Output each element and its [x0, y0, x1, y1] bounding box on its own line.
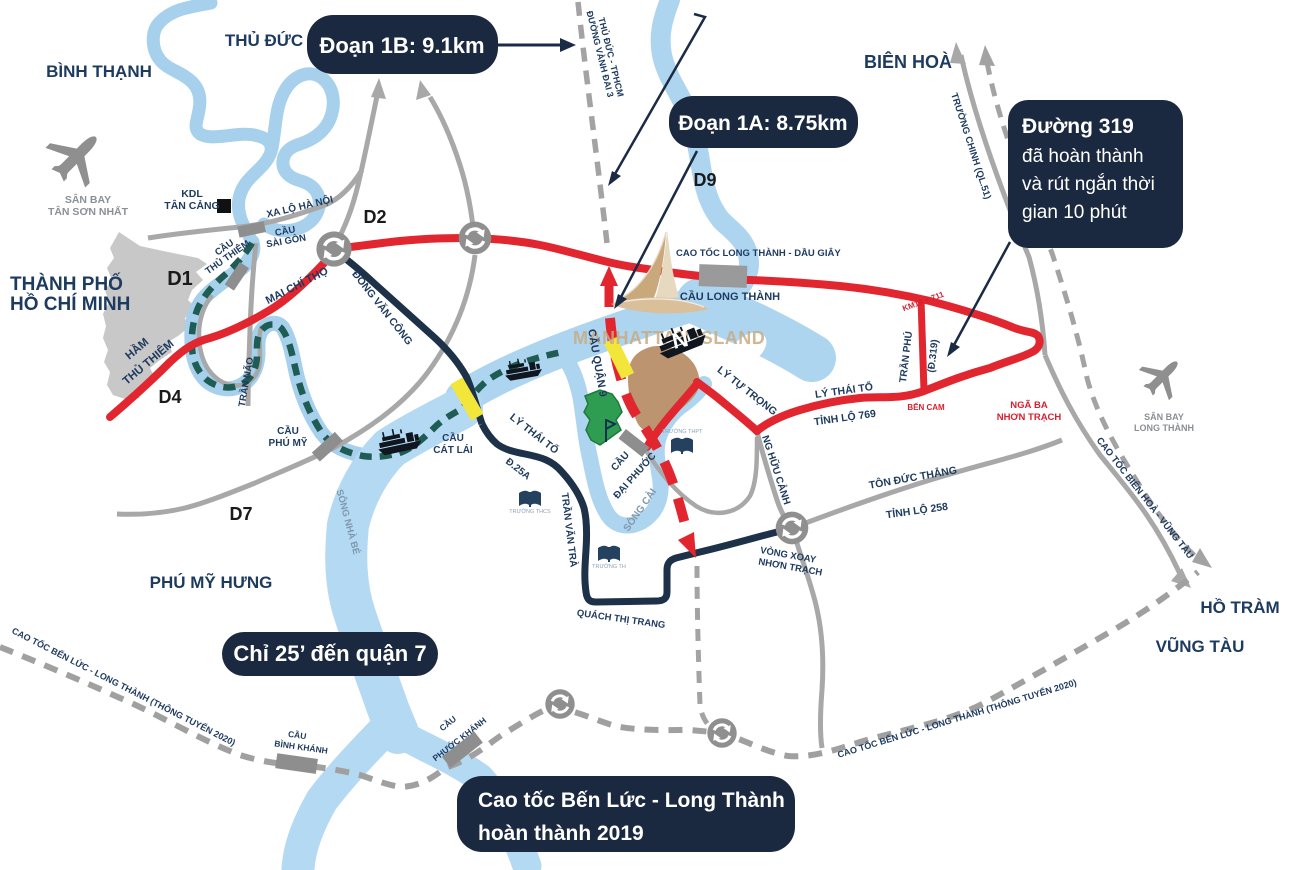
svg-text:BÌNH THẠNH: BÌNH THẠNH [46, 62, 152, 81]
svg-text:đã hoàn thành: đã hoàn thành [1022, 146, 1144, 167]
svg-text:TÂN SƠN NHẤT: TÂN SƠN NHẤT [48, 205, 129, 218]
svg-text:CÁT LÁI: CÁT LÁI [433, 443, 473, 456]
svg-text:Đoạn 1A: 8.75km: Đoạn 1A: 8.75km [678, 112, 847, 135]
svg-text:SÂN BAY: SÂN BAY [65, 193, 111, 206]
svg-text:CAO TỐC LONG THÀNH - DẦU GIÂY: CAO TỐC LONG THÀNH - DẦU GIÂY [676, 247, 841, 259]
svg-text:NGÃ BA: NGÃ BA [1010, 400, 1048, 411]
svg-text:Cao tốc Bến Lức - Long Thành: Cao tốc Bến Lức - Long Thành [478, 789, 785, 812]
svg-text:gian 10 phút: gian 10 phút [1022, 202, 1127, 223]
svg-text:D4: D4 [158, 387, 181, 407]
svg-text:D2: D2 [363, 207, 386, 227]
svg-text:HỒ CHÍ MINH: HỒ CHÍ MINH [10, 293, 130, 315]
svg-text:THÀNH PHỐ: THÀNH PHỐ [10, 273, 123, 295]
svg-text:BẾN CAM: BẾN CAM [907, 402, 945, 412]
svg-text:hoàn thành 2019: hoàn thành 2019 [478, 822, 644, 845]
svg-text:D1: D1 [167, 268, 193, 290]
svg-text:Chỉ 25’ đến quận 7: Chỉ 25’ đến quận 7 [233, 641, 426, 666]
svg-text:và rút ngắn thời: và rút ngắn thời [1022, 173, 1155, 195]
svg-text:PHÚ MỸ HƯNG: PHÚ MỸ HƯNG [150, 572, 273, 592]
svg-text:HỒ TRÀM: HỒ TRÀM [1200, 598, 1279, 617]
svg-text:LONG THÀNH: LONG THÀNH [1134, 423, 1194, 433]
svg-text:TRƯỜNG TH: TRƯỜNG TH [592, 563, 626, 570]
svg-text:CẦU LONG THÀNH: CẦU LONG THÀNH [680, 290, 780, 303]
svg-text:BIÊN HOÀ: BIÊN HOÀ [864, 51, 952, 72]
svg-text:SÂN BAY: SÂN BAY [1144, 411, 1184, 422]
svg-text:TÂN CẢNG: TÂN CẢNG [164, 199, 219, 212]
svg-text:D9: D9 [693, 170, 716, 190]
svg-text:VŨNG TÀU: VŨNG TÀU [1156, 636, 1245, 656]
svg-text:CẦU: CẦU [442, 431, 464, 444]
svg-text:NHƠN TRẠCH: NHƠN TRẠCH [997, 412, 1062, 423]
svg-text:PHÚ MỸ: PHÚ MỸ [269, 436, 308, 449]
svg-text:CẦU: CẦU [277, 424, 299, 437]
svg-text:Đường 319: Đường 319 [1022, 115, 1134, 138]
svg-text:TRƯỜNG THCS: TRƯỜNG THCS [509, 508, 551, 515]
svg-text:TRƯỜNG THPT: TRƯỜNG THPT [662, 428, 703, 435]
svg-text:THỦ ĐỨC: THỦ ĐỨC [225, 31, 303, 50]
svg-text:KDL: KDL [181, 188, 203, 200]
svg-text:D7: D7 [229, 504, 252, 524]
svg-text:Đoạn 1B: 9.1km: Đoạn 1B: 9.1km [319, 33, 484, 58]
